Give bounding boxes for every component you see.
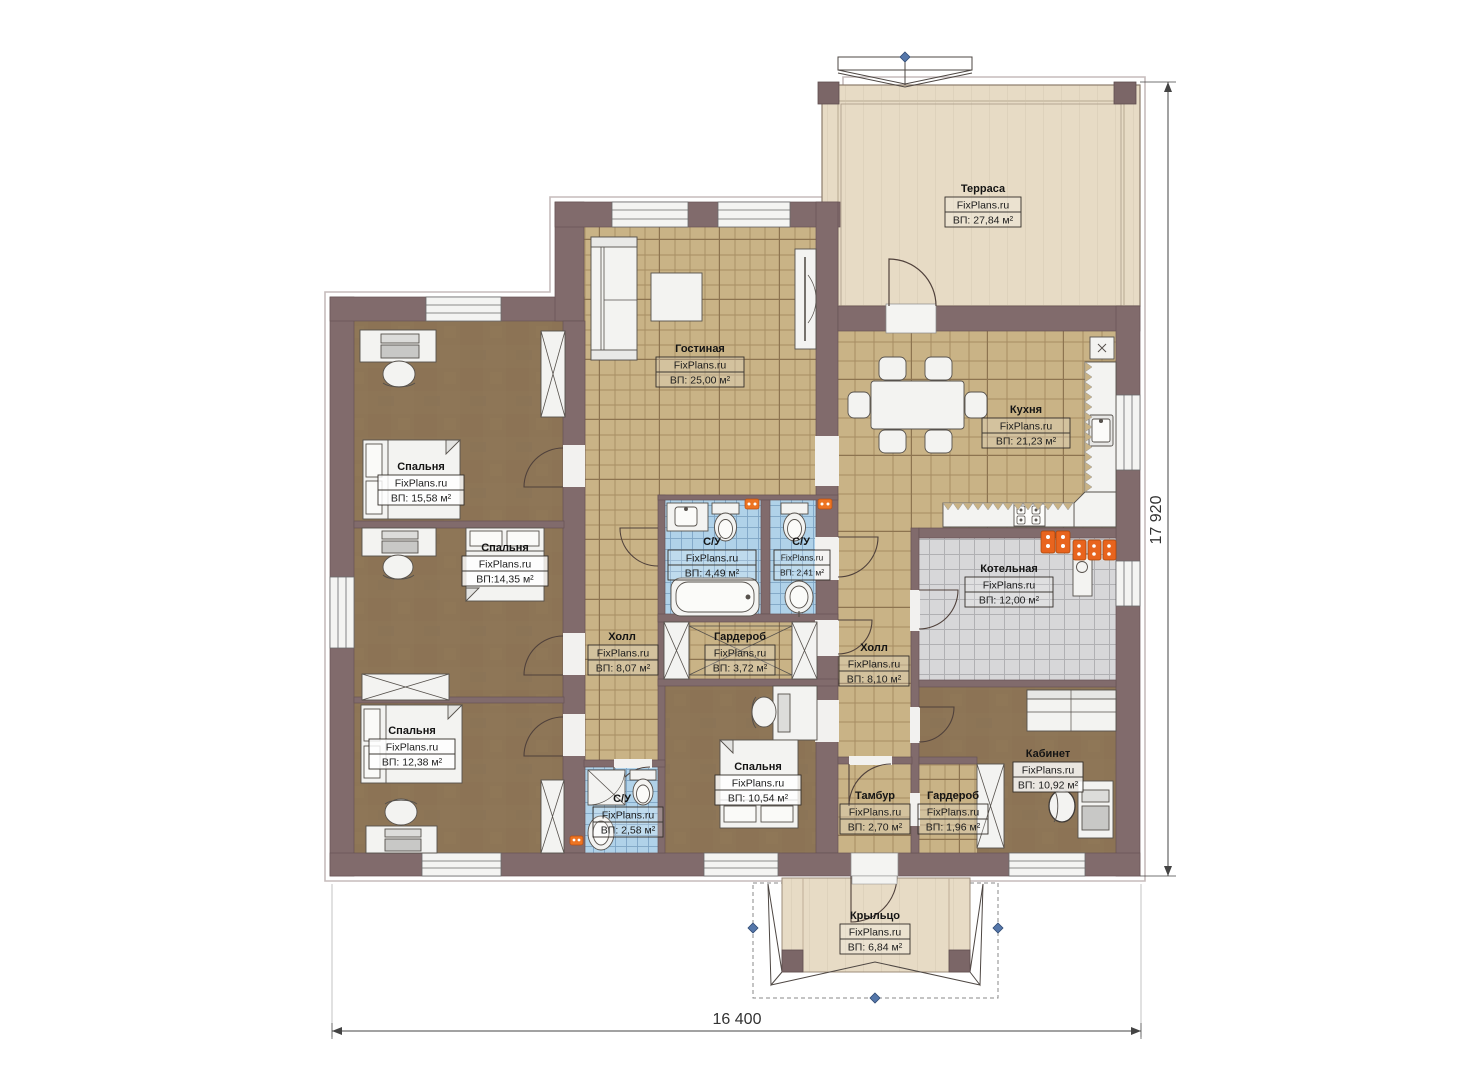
- svg-text:ВП: 10,54 м²: ВП: 10,54 м²: [728, 793, 789, 805]
- svg-text:С/У: С/У: [613, 793, 631, 805]
- svg-text:ВП: 27,84 м²: ВП: 27,84 м²: [953, 215, 1014, 227]
- svg-text:FixPlans.ru: FixPlans.ru: [927, 807, 980, 819]
- svg-text:FixPlans.ru: FixPlans.ru: [732, 778, 785, 790]
- svg-text:ВП:14,35 м²: ВП:14,35 м²: [476, 574, 534, 586]
- svg-text:Спальня: Спальня: [397, 461, 445, 473]
- svg-text:FixPlans.ru: FixPlans.ru: [686, 553, 739, 565]
- svg-text:Тамбур: Тамбур: [855, 790, 895, 802]
- svg-text:FixPlans.ru: FixPlans.ru: [781, 553, 824, 563]
- svg-text:Гостиная: Гостиная: [675, 343, 725, 355]
- svg-text:ВП: 1,96 м²: ВП: 1,96 м²: [926, 822, 981, 834]
- svg-text:ВП: 8,10 м²: ВП: 8,10 м²: [847, 674, 902, 686]
- svg-text:FixPlans.ru: FixPlans.ru: [674, 360, 727, 372]
- svg-text:ВП: 8,07 м²: ВП: 8,07 м²: [596, 663, 651, 675]
- svg-text:FixPlans.ru: FixPlans.ru: [983, 580, 1036, 592]
- svg-text:Спальня: Спальня: [734, 761, 782, 773]
- svg-text:Терраса: Терраса: [961, 183, 1006, 195]
- svg-text:16 400: 16 400: [713, 1011, 762, 1028]
- svg-text:FixPlans.ru: FixPlans.ru: [849, 927, 902, 939]
- svg-text:FixPlans.ru: FixPlans.ru: [714, 648, 767, 660]
- svg-text:ВП: 6,84 м²: ВП: 6,84 м²: [848, 942, 903, 954]
- svg-text:FixPlans.ru: FixPlans.ru: [395, 478, 448, 490]
- svg-text:ВП: 10,92 м²: ВП: 10,92 м²: [1018, 780, 1079, 792]
- svg-text:ВП: 2,41 м²: ВП: 2,41 м²: [780, 568, 824, 578]
- svg-text:Спальня: Спальня: [481, 542, 529, 554]
- svg-text:FixPlans.ru: FixPlans.ru: [848, 659, 901, 671]
- svg-text:ВП: 4,49 м²: ВП: 4,49 м²: [685, 568, 740, 580]
- svg-text:FixPlans.ru: FixPlans.ru: [1000, 421, 1053, 433]
- svg-text:С/У: С/У: [703, 536, 721, 548]
- svg-text:ВП: 21,23 м²: ВП: 21,23 м²: [996, 436, 1057, 448]
- svg-text:Холл: Холл: [608, 631, 636, 643]
- svg-text:Кухня: Кухня: [1010, 404, 1042, 416]
- svg-text:Гардероб: Гардероб: [714, 631, 766, 643]
- svg-text:Холл: Холл: [860, 642, 888, 654]
- svg-text:Гардероб: Гардероб: [927, 790, 979, 802]
- svg-text:ВП: 3,72 м²: ВП: 3,72 м²: [713, 663, 768, 675]
- svg-text:FixPlans.ru: FixPlans.ru: [602, 810, 655, 822]
- svg-text:FixPlans.ru: FixPlans.ru: [849, 807, 902, 819]
- svg-text:17 920: 17 920: [1148, 495, 1165, 544]
- svg-text:FixPlans.ru: FixPlans.ru: [957, 200, 1010, 212]
- svg-text:ВП: 2,70 м²: ВП: 2,70 м²: [848, 822, 903, 834]
- svg-text:ВП: 12,38 м²: ВП: 12,38 м²: [382, 757, 443, 769]
- svg-text:ВП: 2,58 м²: ВП: 2,58 м²: [601, 825, 656, 837]
- svg-text:FixPlans.ru: FixPlans.ru: [479, 559, 532, 571]
- svg-text:Кабинет: Кабинет: [1026, 748, 1071, 760]
- svg-text:Крыльцо: Крыльцо: [850, 910, 900, 922]
- svg-text:Спальня: Спальня: [388, 725, 436, 737]
- svg-text:ВП: 12,00 м²: ВП: 12,00 м²: [979, 595, 1040, 607]
- svg-text:FixPlans.ru: FixPlans.ru: [597, 648, 650, 660]
- svg-text:FixPlans.ru: FixPlans.ru: [1022, 765, 1075, 777]
- svg-text:ВП: 15,58 м²: ВП: 15,58 м²: [391, 493, 452, 505]
- svg-text:Котельная: Котельная: [980, 563, 1038, 575]
- svg-text:ВП: 25,00 м²: ВП: 25,00 м²: [670, 375, 731, 387]
- svg-text:FixPlans.ru: FixPlans.ru: [386, 742, 439, 754]
- svg-text:С/У: С/У: [792, 536, 810, 548]
